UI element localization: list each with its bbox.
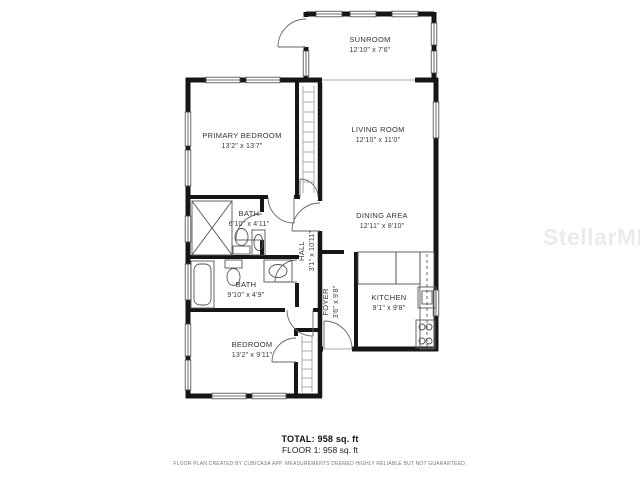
room-dims: 12'10" x 7'6" — [350, 47, 391, 54]
counter — [396, 252, 420, 284]
room-dims: 9'10" x 4'9" — [228, 292, 265, 299]
floorplan-page: StellarMLS — [0, 0, 640, 480]
room-label-dining-area: DINING AREA 12'11" x 8'10" — [356, 211, 408, 231]
room-dims: 12'10" x 11'0" — [356, 137, 401, 144]
refrigerator — [358, 252, 396, 284]
room-label-primary-bedroom: PRIMARY BEDROOM 13'2" x 13'7" — [202, 131, 281, 151]
room-name: DINING AREA — [356, 211, 408, 220]
room-name: LIVING ROOM — [351, 125, 404, 134]
room-label-living-room: LIVING ROOM 12'10" x 11'0" — [351, 125, 404, 145]
room-dims: 9'1" x 9'8" — [373, 305, 406, 312]
room-label-bath-lower: BATH 9'10" x 4'9" — [228, 280, 265, 300]
disclaimer-text: FLOOR PLAN CREATED BY CUBICASA APP. MEAS… — [0, 461, 640, 467]
toilet — [233, 246, 250, 254]
room-dims: 13'2" x 13'7" — [222, 143, 263, 150]
area-summary: TOTAL: 958 sq. ft FLOOR 1: 958 sq. ft FL… — [0, 434, 640, 467]
stellar-mls-watermark: StellarMLS — [543, 224, 640, 251]
stove — [416, 320, 435, 348]
room-dims: 3'6" x 9'8" — [333, 286, 340, 319]
room-label-foyer: FOYER 3'6" x 9'8" — [321, 286, 341, 319]
room-dims: 12'11" x 8'10" — [360, 223, 405, 230]
total-area-text: TOTAL: 958 sq. ft — [0, 434, 640, 445]
room-label-bedroom: BEDROOM 13'2" x 9'11" — [232, 340, 273, 360]
toilet — [225, 260, 242, 268]
room-label-bath-upper: BATH 6'10" x 4'11" — [229, 209, 269, 229]
room-name: BATH — [239, 209, 260, 218]
room-label-sunroom: SUNROOM 12'10" x 7'6" — [349, 35, 390, 55]
room-dims: 6'10" x 4'11" — [229, 221, 269, 228]
room-name: PRIMARY BEDROOM — [202, 131, 281, 140]
room-name: BATH — [236, 280, 257, 289]
room-dims: 3'1" x 10'11" — [309, 231, 316, 271]
room-label-hall: HALL 3'1" x 10'11" — [297, 231, 317, 271]
room-name: SUNROOM — [349, 35, 390, 44]
room-name: KITCHEN — [371, 293, 406, 302]
room-label-kitchen: KITCHEN 9'1" x 9'8" — [371, 293, 406, 313]
floor1-area-text: FLOOR 1: 958 sq. ft — [0, 445, 640, 456]
room-name: FOYER — [321, 288, 330, 315]
room-dims: 13'2" x 9'11" — [232, 352, 272, 359]
room-name: BEDROOM — [232, 340, 273, 349]
room-name: HALL — [297, 241, 306, 261]
